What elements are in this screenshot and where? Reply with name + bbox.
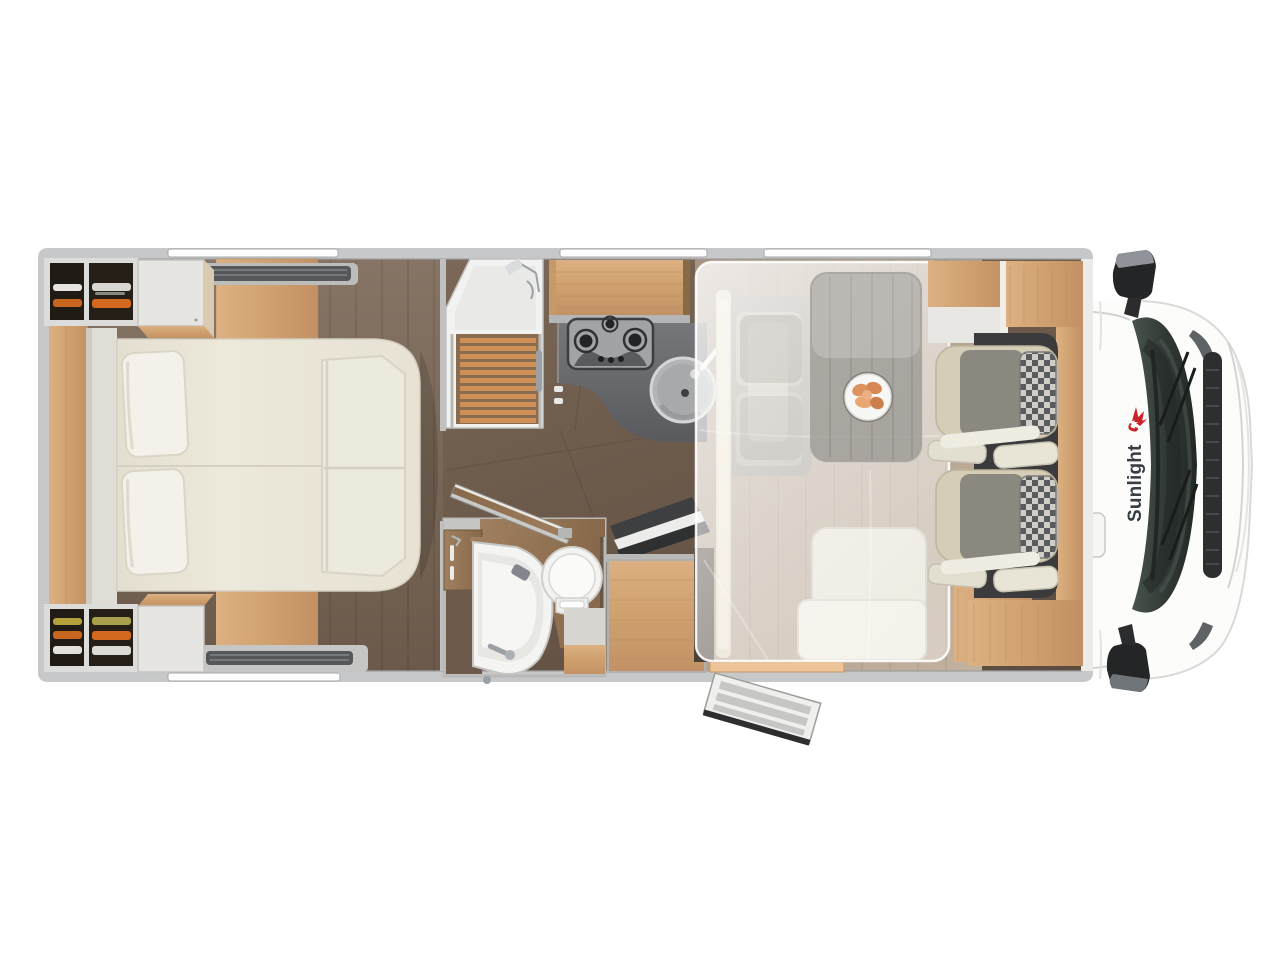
svg-text:Sunlight: Sunlight	[1125, 444, 1146, 522]
